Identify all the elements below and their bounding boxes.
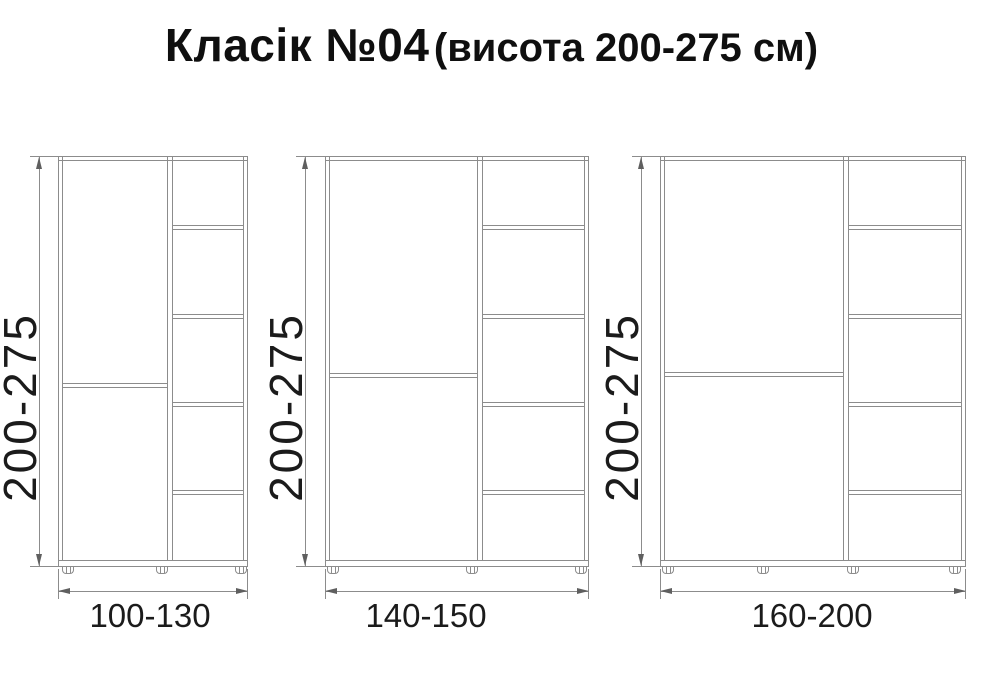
- cabinet-inner-right-edge: [243, 157, 244, 561]
- shelf-line: [849, 225, 961, 230]
- width-dim-label: 160-200: [751, 597, 872, 635]
- shelf-line: [483, 402, 584, 407]
- center-partition: [843, 157, 849, 561]
- width-dimension-line: [325, 591, 589, 592]
- foot: [949, 566, 961, 574]
- extension-line-left: [58, 569, 59, 599]
- arrow-right-icon: [577, 588, 589, 594]
- shelf-line: [483, 314, 584, 319]
- arrow-down-icon: [36, 554, 42, 566]
- center-partition: [477, 157, 483, 561]
- foot: [235, 566, 247, 574]
- shelf-line: [483, 225, 584, 230]
- extension-line-bottom: [296, 566, 325, 567]
- page-title-model: Класік №04: [165, 19, 430, 71]
- cabinet-inner-left-edge: [664, 157, 665, 561]
- shelf-line: [849, 402, 961, 407]
- arrow-up-icon: [638, 157, 644, 169]
- arrow-right-icon: [236, 588, 248, 594]
- foot: [757, 566, 769, 574]
- page-title: Класік №04 (висота 200-275 см): [0, 18, 983, 72]
- page-title-height-note: (висота 200-275 см): [434, 26, 818, 70]
- extension-line-left: [325, 569, 326, 599]
- cabinet-inner-top-edge: [326, 160, 588, 161]
- center-partition: [167, 157, 173, 561]
- arrow-left-icon: [58, 588, 70, 594]
- arrow-down-icon: [302, 554, 308, 566]
- shelf-line: [173, 490, 243, 495]
- extension-line-bottom: [30, 566, 58, 567]
- door-divider: [665, 372, 843, 377]
- cabinet-inner-right-edge: [961, 157, 962, 561]
- foot: [156, 566, 168, 574]
- arrow-down-icon: [638, 554, 644, 566]
- width-dim-label: 140-150: [365, 597, 486, 635]
- arrow-left-icon: [325, 588, 337, 594]
- foot: [62, 566, 74, 574]
- cabinet-frame: [660, 156, 966, 567]
- arrow-up-icon: [36, 157, 42, 169]
- extension-line-top: [296, 156, 325, 157]
- cabinet-inner-right-edge: [584, 157, 585, 561]
- extension-line-bottom: [632, 566, 660, 567]
- shelf-line: [173, 402, 243, 407]
- cabinet-frame: [58, 156, 248, 567]
- extension-line-top: [632, 156, 660, 157]
- width-dimension-line: [58, 591, 248, 592]
- foot: [466, 566, 478, 574]
- extension-line-top: [30, 156, 58, 157]
- arrow-up-icon: [302, 157, 308, 169]
- height-dim-label: 200-275: [259, 312, 313, 502]
- foot: [662, 566, 674, 574]
- arrow-right-icon: [954, 588, 966, 594]
- cabinet-plinth-line: [59, 560, 247, 561]
- width-dim-label: 100-130: [89, 597, 210, 635]
- extension-line-left: [660, 569, 661, 599]
- width-dimension-line: [660, 591, 966, 592]
- extension-line-right: [588, 569, 589, 599]
- shelf-line: [173, 225, 243, 230]
- arrow-left-icon: [660, 588, 672, 594]
- cabinet-plinth-line: [326, 560, 588, 561]
- door-divider: [63, 383, 167, 388]
- extension-line-right: [965, 569, 966, 599]
- foot: [847, 566, 859, 574]
- cabinet-inner-top-edge: [59, 160, 247, 161]
- shelf-line: [173, 314, 243, 319]
- shelf-line: [849, 314, 961, 319]
- cabinet-inner-top-edge: [661, 160, 965, 161]
- foot: [575, 566, 587, 574]
- cabinet-plinth-line: [661, 560, 965, 561]
- cabinet-inner-left-edge: [62, 157, 63, 561]
- door-divider: [330, 373, 477, 378]
- cabinet-inner-left-edge: [329, 157, 330, 561]
- foot: [327, 566, 339, 574]
- height-dim-label: 200-275: [595, 312, 649, 502]
- shelf-line: [483, 490, 584, 495]
- cabinet-frame: [325, 156, 589, 567]
- height-dim-label: 200-275: [0, 312, 47, 502]
- furniture-diagram-page: Класік №04 (висота 200-275 см) 200-275 1…: [0, 0, 983, 700]
- shelf-line: [849, 490, 961, 495]
- extension-line-right: [247, 569, 248, 599]
